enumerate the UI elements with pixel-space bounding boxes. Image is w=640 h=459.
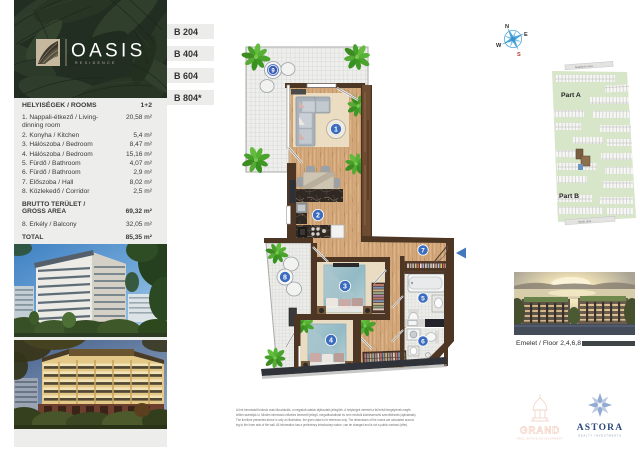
svg-text:REALTY INVESTMENTS: REALTY INVESTMENTS	[578, 434, 621, 438]
svg-text:3: 3	[343, 284, 347, 291]
svg-text:Napfürdő utca: Napfürdő utca	[575, 64, 593, 69]
svg-text:7: 7	[421, 247, 425, 254]
svg-text:GRAND: GRAND	[520, 426, 560, 437]
svg-text:6: 6	[421, 338, 425, 345]
svg-text:N: N	[505, 24, 509, 30]
svg-text:1: 1	[334, 127, 338, 134]
svg-text:Part B: Part B	[559, 193, 579, 200]
svg-text:4: 4	[329, 338, 333, 345]
svg-text:2: 2	[316, 213, 320, 220]
svg-text:ASTORA: ASTORA	[577, 423, 624, 433]
svg-text:W: W	[496, 43, 502, 49]
svg-text:Part A: Part A	[561, 92, 581, 99]
svg-text:REAL ESTATE DEVELOPMENT: REAL ESTATE DEVELOPMENT	[517, 438, 563, 441]
svg-text:5: 5	[421, 295, 425, 302]
svg-text:E: E	[524, 32, 528, 38]
svg-text:8: 8	[283, 275, 287, 282]
svg-text:S: S	[517, 52, 521, 58]
